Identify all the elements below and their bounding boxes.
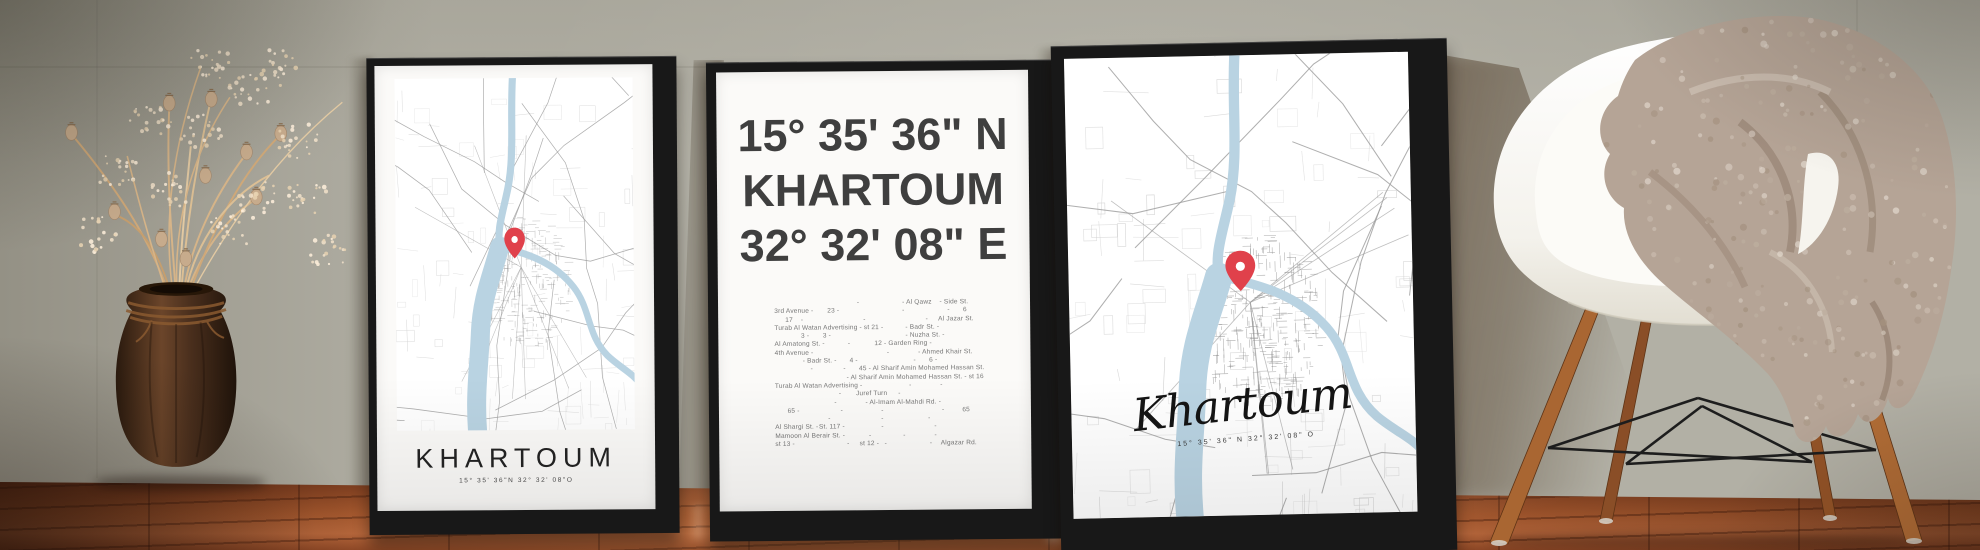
street-label: - Al Qawz: [902, 299, 932, 306]
poster-frame-center: 15° 35' 36" N KHARTOUM 32° 32' 08" E -- …: [706, 59, 1062, 541]
street-label: -: [841, 407, 843, 414]
street-label: Algazar Rd.: [941, 439, 977, 446]
street-label: -: [887, 349, 889, 356]
street-label: -: [934, 431, 936, 438]
street-label: -: [843, 366, 845, 373]
street-label: -: [930, 440, 932, 447]
chair-foot-caps: [1491, 515, 1922, 546]
street-label: 23 -: [827, 308, 839, 315]
street-label: - Ahmed Khair St.: [918, 348, 972, 355]
street-label: -: [909, 382, 911, 389]
street-label: st 13 -: [775, 441, 795, 448]
street-label: -: [928, 415, 930, 422]
poster-title: KHARTOUM: [377, 442, 655, 475]
street-label: -: [881, 423, 883, 430]
seed-pod: [241, 142, 253, 160]
poster-frame-right: Khartoum 15° 35' 36" N 32° 32' 08" O: [1051, 38, 1458, 550]
seed-pod: [163, 93, 175, 111]
street-label: - Nuzha St. -: [905, 332, 944, 339]
street-label: 6 -: [929, 357, 937, 364]
street-label: 4th Avenue -: [775, 349, 814, 356]
floor-highlight: [693, 505, 703, 539]
street-label: -: [898, 390, 900, 397]
vase: [116, 282, 237, 467]
street-label: -: [828, 416, 830, 423]
street-label: -: [857, 299, 859, 306]
street-label: Juref Turn: [856, 390, 887, 397]
street-label: - Al-Imam Al-Mahdi Rd. -: [865, 398, 941, 406]
street-label: -: [847, 440, 849, 447]
street-text-map: -- Al Qawz- Side St.3rd Avenue -23 ---61…: [718, 298, 1031, 451]
street-label: St. 117 -: [819, 424, 845, 431]
street-label: -: [942, 406, 944, 413]
street-label: -: [801, 316, 803, 323]
street-label: - Badr St. -: [803, 357, 837, 364]
street-label: - Al Sharif Amin Mohamed Hassan St. - st…: [847, 373, 984, 381]
poster-coordinates: 15° 35' 36"N 32° 32' 08"O: [377, 476, 655, 485]
seed-pod: [66, 123, 78, 141]
seed-pod: [109, 202, 121, 220]
longitude-line: 32° 32' 08" E: [717, 216, 1029, 274]
dried-flower-arrangement: [5, 8, 357, 480]
latitude-line: 15° 35' 36" N: [716, 106, 1028, 164]
street-label: Turab Al Watan Advertising - st 21 -: [774, 324, 883, 332]
street-label: -: [947, 307, 949, 314]
street-label: -: [869, 432, 871, 439]
street-label: -: [881, 415, 883, 422]
street-label: -: [863, 316, 865, 323]
street-label: -: [834, 399, 836, 406]
street-label: -: [811, 366, 813, 373]
poster-paper: Khartoum 15° 35' 36" N 32° 32' 08" O: [1064, 52, 1418, 519]
street-label: -: [881, 407, 883, 414]
poster-paper: 15° 35' 36" N KHARTOUM 32° 32' 08" E -- …: [716, 70, 1032, 512]
throw-blanket: [1589, 14, 1973, 444]
street-label: - Side St.: [940, 298, 969, 305]
street-label: Al Jazar St.: [938, 315, 974, 322]
street-label: 3rd Avenue -: [774, 308, 813, 315]
poster-headline: 15° 35' 36" N KHARTOUM 32° 32' 08" E: [716, 106, 1029, 274]
street-row: st 13 --st 12 ---Algazar Rd.: [719, 439, 1031, 450]
street-label: -: [885, 440, 887, 447]
seed-pod: [156, 229, 168, 247]
city-map-svg: [394, 77, 634, 431]
street-label: Mamoon Al Berair St. -: [775, 432, 845, 440]
street-label: -: [848, 341, 850, 348]
street-label: - Badr St. -: [905, 323, 939, 330]
seed-pod: [275, 124, 287, 142]
street-label: 17: [785, 316, 793, 323]
street-label: -: [902, 307, 904, 314]
street-label: 3 -: [801, 333, 809, 340]
room-scene: KHARTOUM 15° 35' 36"N 32° 32' 08"O 15° 3…: [0, 0, 1980, 550]
seed-pod: [200, 166, 212, 184]
babys-breath-flowers: [79, 48, 346, 266]
city-map: [394, 77, 634, 431]
street-label: 45 - Al Sharif Amin Mohamed Hassan St.: [859, 365, 984, 373]
street-label: 3 -: [823, 333, 831, 340]
street-label: Turab Al Watan Advertising -: [775, 382, 863, 390]
seed-pod: [205, 90, 217, 108]
poster-paper: KHARTOUM 15° 35' 36"N 32° 32' 08"O: [374, 64, 655, 511]
street-label: 6: [963, 307, 967, 314]
street-label: 65: [962, 406, 970, 413]
city-name: KHARTOUM: [717, 161, 1029, 219]
street-label: Al Amatong St. -: [775, 341, 825, 348]
street-label: 4 -: [850, 357, 858, 364]
street-label: -: [913, 357, 915, 364]
street-label: -: [926, 315, 928, 322]
street-label: -: [839, 391, 841, 398]
street-label: -: [903, 432, 905, 439]
street-label: st 12 -: [860, 440, 880, 447]
street-label: 12 - Garden Ring -: [874, 340, 931, 348]
street-label: -: [934, 423, 936, 430]
street-label: Al Shargi St. -: [775, 424, 818, 431]
street-label: 65 -: [788, 408, 800, 415]
street-label: -: [940, 381, 942, 388]
poster-frame-left: KHARTOUM 15° 35' 36"N 32° 32' 08"O: [366, 56, 679, 535]
eames-chair: [1440, 2, 1980, 550]
